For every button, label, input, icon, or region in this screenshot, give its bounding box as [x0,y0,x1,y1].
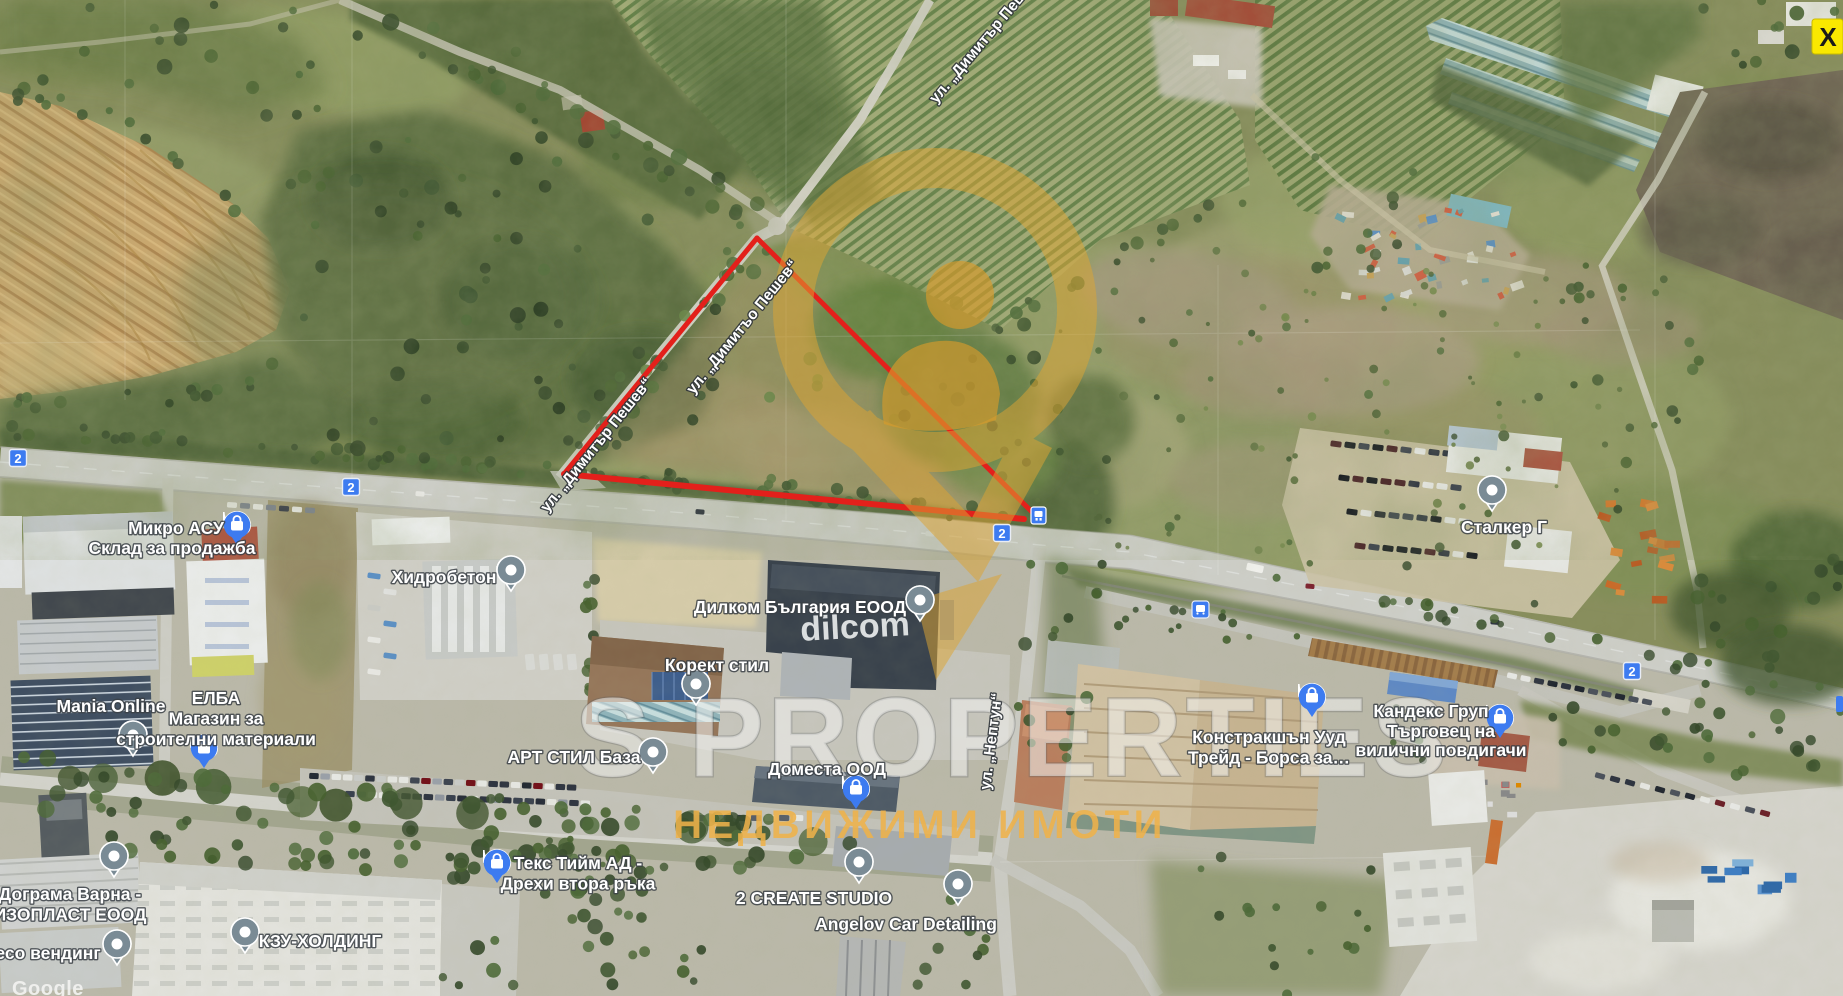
svg-text:строителни материали: строителни материали [116,729,316,749]
svg-text:Mania Online: Mania Online [57,696,166,716]
svg-text:2: 2 [1628,664,1635,679]
svg-text:Микро АСУ: Микро АСУ [128,518,225,538]
svg-text:Доместа ООД: Доместа ООД [768,759,886,779]
svg-text:Дилком България ЕООД: Дилком България ЕООД [694,597,907,617]
svg-text:Констракшън Ууд: Констракшън Ууд [1192,727,1346,747]
svg-text:Склад за продажба: Склад за продажба [88,538,255,558]
svg-text:Сталкер Г: Сталкер Г [1461,517,1547,537]
svg-text:ЕЛБА: ЕЛБА [192,688,241,708]
svg-text:X: X [1819,22,1837,52]
svg-text:НЕДВИЖИМИ ИМОТИ: НЕДВИЖИМИ ИМОТИ [673,803,1167,847]
svg-text:Трейд - Борса за…: Трейд - Борса за… [1188,748,1350,768]
svg-text:Дограма Варна -: Дограма Варна - [0,884,141,904]
svg-text:Търговец на: Търговец на [1387,721,1495,741]
svg-text:Хидробетон: Хидробетон [392,567,497,587]
svg-text:есо вендинг: есо вендинг [0,943,101,963]
svg-text:Магазин за: Магазин за [169,709,264,729]
svg-text:Корект стил: Корект стил [665,655,769,675]
svg-text:Дрехи втора ръка: Дрехи втора ръка [501,874,656,894]
svg-text:2: 2 [347,480,354,495]
svg-text:2 CREATE STUDIO: 2 CREATE STUDIO [736,888,892,908]
svg-text:Кандекс Груп: Кандекс Груп [1373,701,1488,721]
svg-text:вилични повдигачи: вилични повдигачи [1355,740,1526,760]
svg-text:2: 2 [998,526,1005,541]
svg-text:АРТ СТИЛ База: АРТ СТИЛ База [508,747,641,767]
svg-text:2: 2 [14,451,21,466]
svg-text:КЗУ-ХОЛДИНГ: КЗУ-ХОЛДИНГ [259,931,382,951]
svg-text:Текс Тийм АД -: Текс Тийм АД - [514,853,643,873]
svg-text:Angelov Car Detailing: Angelov Car Detailing [815,914,997,934]
svg-text:ИЗОПЛАСТ ЕООД: ИЗОПЛАСТ ЕООД [0,905,147,925]
svg-text:Google: Google [12,978,84,996]
